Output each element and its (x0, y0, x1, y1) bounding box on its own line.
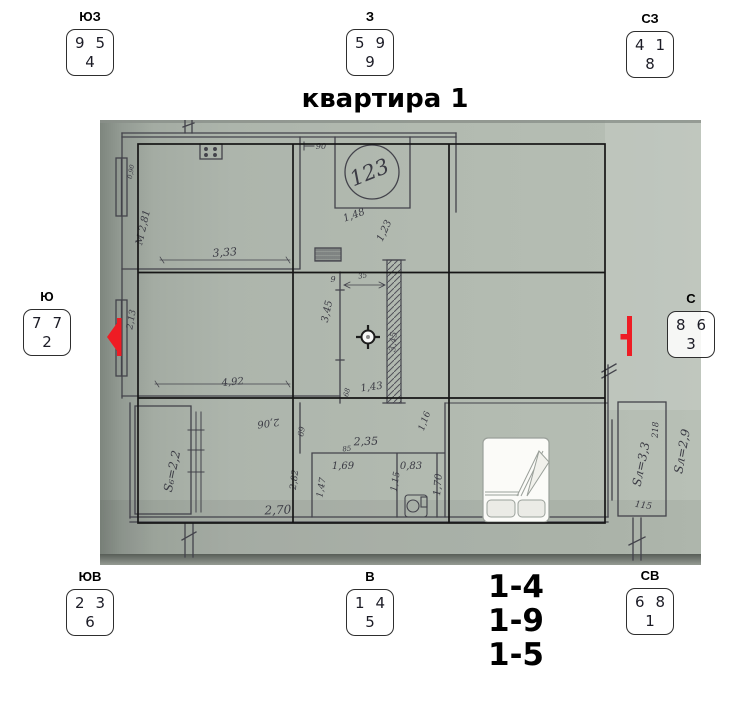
measurement: 0,83 (400, 461, 422, 472)
star-number: 5 (95, 34, 105, 52)
measurement: 4,92 (220, 376, 244, 389)
compass-card-s: 77 2 (23, 309, 71, 356)
star-number: 8 (676, 316, 686, 334)
star-number: 5 (365, 613, 375, 631)
star-pair-line: 1-5 (488, 638, 544, 672)
compass-label-sw: ЮЗ (60, 9, 120, 24)
star-number: 3 (95, 594, 105, 612)
measurement: 2,35 (352, 435, 378, 449)
star-number: 7 (32, 314, 42, 332)
star-number: 9 (375, 34, 385, 52)
measurement: 9 (330, 275, 335, 284)
compass-sector-e: В 14 5 (340, 569, 400, 636)
compass-card-nw: 41 8 (626, 31, 674, 78)
star-number: 2 (42, 333, 52, 351)
photo-bottom-shadow (100, 554, 701, 565)
compass-label-ne: СВ (620, 568, 680, 583)
compass-sector-ne: СВ 68 1 (620, 568, 680, 635)
compass-card-e: 14 5 (346, 589, 394, 636)
star-number: 6 (696, 316, 706, 334)
compass-card-w: 59 9 (346, 29, 394, 76)
star-number: 1 (645, 612, 655, 630)
star-pair-line: 1-4 (488, 570, 544, 604)
compass-label-s: Ю (17, 289, 77, 304)
compass-sector-sw: ЮЗ 95 4 (60, 9, 120, 76)
bed-icon (483, 438, 549, 522)
measurement: 1,70 (432, 473, 445, 497)
measurement: 1,69 (332, 461, 355, 472)
star-number: 8 (645, 55, 655, 73)
compass-label-w: З (340, 9, 400, 24)
measurement: 85 (342, 445, 352, 454)
star-number: 7 (52, 314, 62, 332)
compass-card-n: 86 3 (667, 311, 715, 358)
compass-sector-w: З 59 9 (340, 9, 400, 76)
star-number: 1 (355, 594, 365, 612)
compass-sector-n: С 86 3 (661, 291, 721, 358)
apartment-title: квартира 1 (85, 84, 685, 114)
compass-sector-s: Ю 77 2 (17, 289, 77, 356)
compass-sector-nw: СЗ 41 8 (620, 11, 680, 78)
star-number: 3 (686, 335, 696, 353)
compass-card-sw: 95 4 (66, 29, 114, 76)
star-number: 6 (635, 593, 645, 611)
star-number: 8 (655, 593, 665, 611)
measurement: 3,45 (388, 331, 400, 352)
compass-label-se: ЮВ (60, 569, 120, 584)
measurement: 3,33 (212, 245, 237, 260)
page: квартира 1 (0, 0, 736, 709)
compass-label-n: С (661, 291, 721, 306)
compass-card-se: 23 6 (66, 589, 114, 636)
star-number: 4 (85, 53, 95, 71)
compass-sector-se: ЮВ 23 6 (60, 569, 120, 636)
measurement: 218 (651, 421, 662, 439)
star-number: 2 (75, 594, 85, 612)
star-number: 4 (375, 594, 385, 612)
star-number: 6 (85, 613, 95, 631)
compass-card-ne: 68 1 (626, 588, 674, 635)
star-number: 9 (75, 34, 85, 52)
compass-label-nw: СЗ (620, 11, 680, 26)
star-number: 1 (655, 36, 665, 54)
star-pair-codes: 1-4 1-9 1-5 (488, 570, 544, 672)
star-number: 4 (635, 36, 645, 54)
star-number: 9 (365, 53, 375, 71)
star-pair-line: 1-9 (488, 604, 544, 638)
compass-label-e: В (340, 569, 400, 584)
measurement: 2,70 (263, 503, 292, 518)
star-number: 5 (355, 34, 365, 52)
floor-plan-photo: 0,90 М 2,81 3,33 90 123 1,48 1,23 9 35 3… (100, 120, 701, 565)
measurement: 69 (296, 426, 307, 438)
